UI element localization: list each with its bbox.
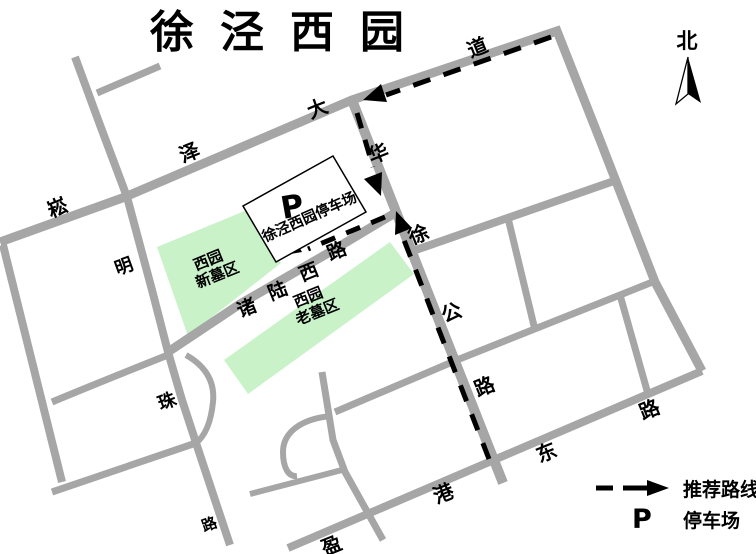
compass-needle-white-icon — [676, 57, 688, 104]
road-grid-vertical-1 — [508, 218, 535, 330]
legend-parking-label: 停车场 — [683, 509, 740, 532]
road-left-horizontal — [52, 443, 196, 492]
route-arrow-down-icon — [364, 172, 382, 196]
compass: 北 — [676, 28, 701, 104]
road-mingzhu-branch — [97, 66, 160, 93]
xujing-west-garden-map: P 徐泾西园停车场 徐泾西园 北 崧 泽 大 道 明 珠 路 华 徐 公 路 诸… — [0, 0, 756, 554]
compass-north-label: 北 — [677, 28, 698, 53]
legend: 推荐路线 P 停车场 — [596, 478, 756, 535]
road-connector-west — [52, 355, 168, 402]
road-left-boundary — [3, 245, 62, 482]
road-grid-vertical-2 — [620, 295, 648, 394]
legend-route-arrow-icon — [647, 480, 669, 496]
road-label-huaxu-4: 路 — [471, 371, 499, 401]
road-loop-arc — [283, 416, 331, 476]
road-label-mingzhu-1: 明 — [112, 254, 136, 280]
page-title: 徐泾西园 — [149, 7, 430, 58]
legend-parking-symbol: P — [632, 504, 652, 535]
map-svg: P 徐泾西园停车场 徐泾西园 北 崧 泽 大 道 明 珠 路 华 徐 公 路 诸… — [0, 0, 756, 554]
compass-needle-black-icon — [688, 57, 701, 103]
legend-route-label: 推荐路线 — [683, 478, 756, 501]
